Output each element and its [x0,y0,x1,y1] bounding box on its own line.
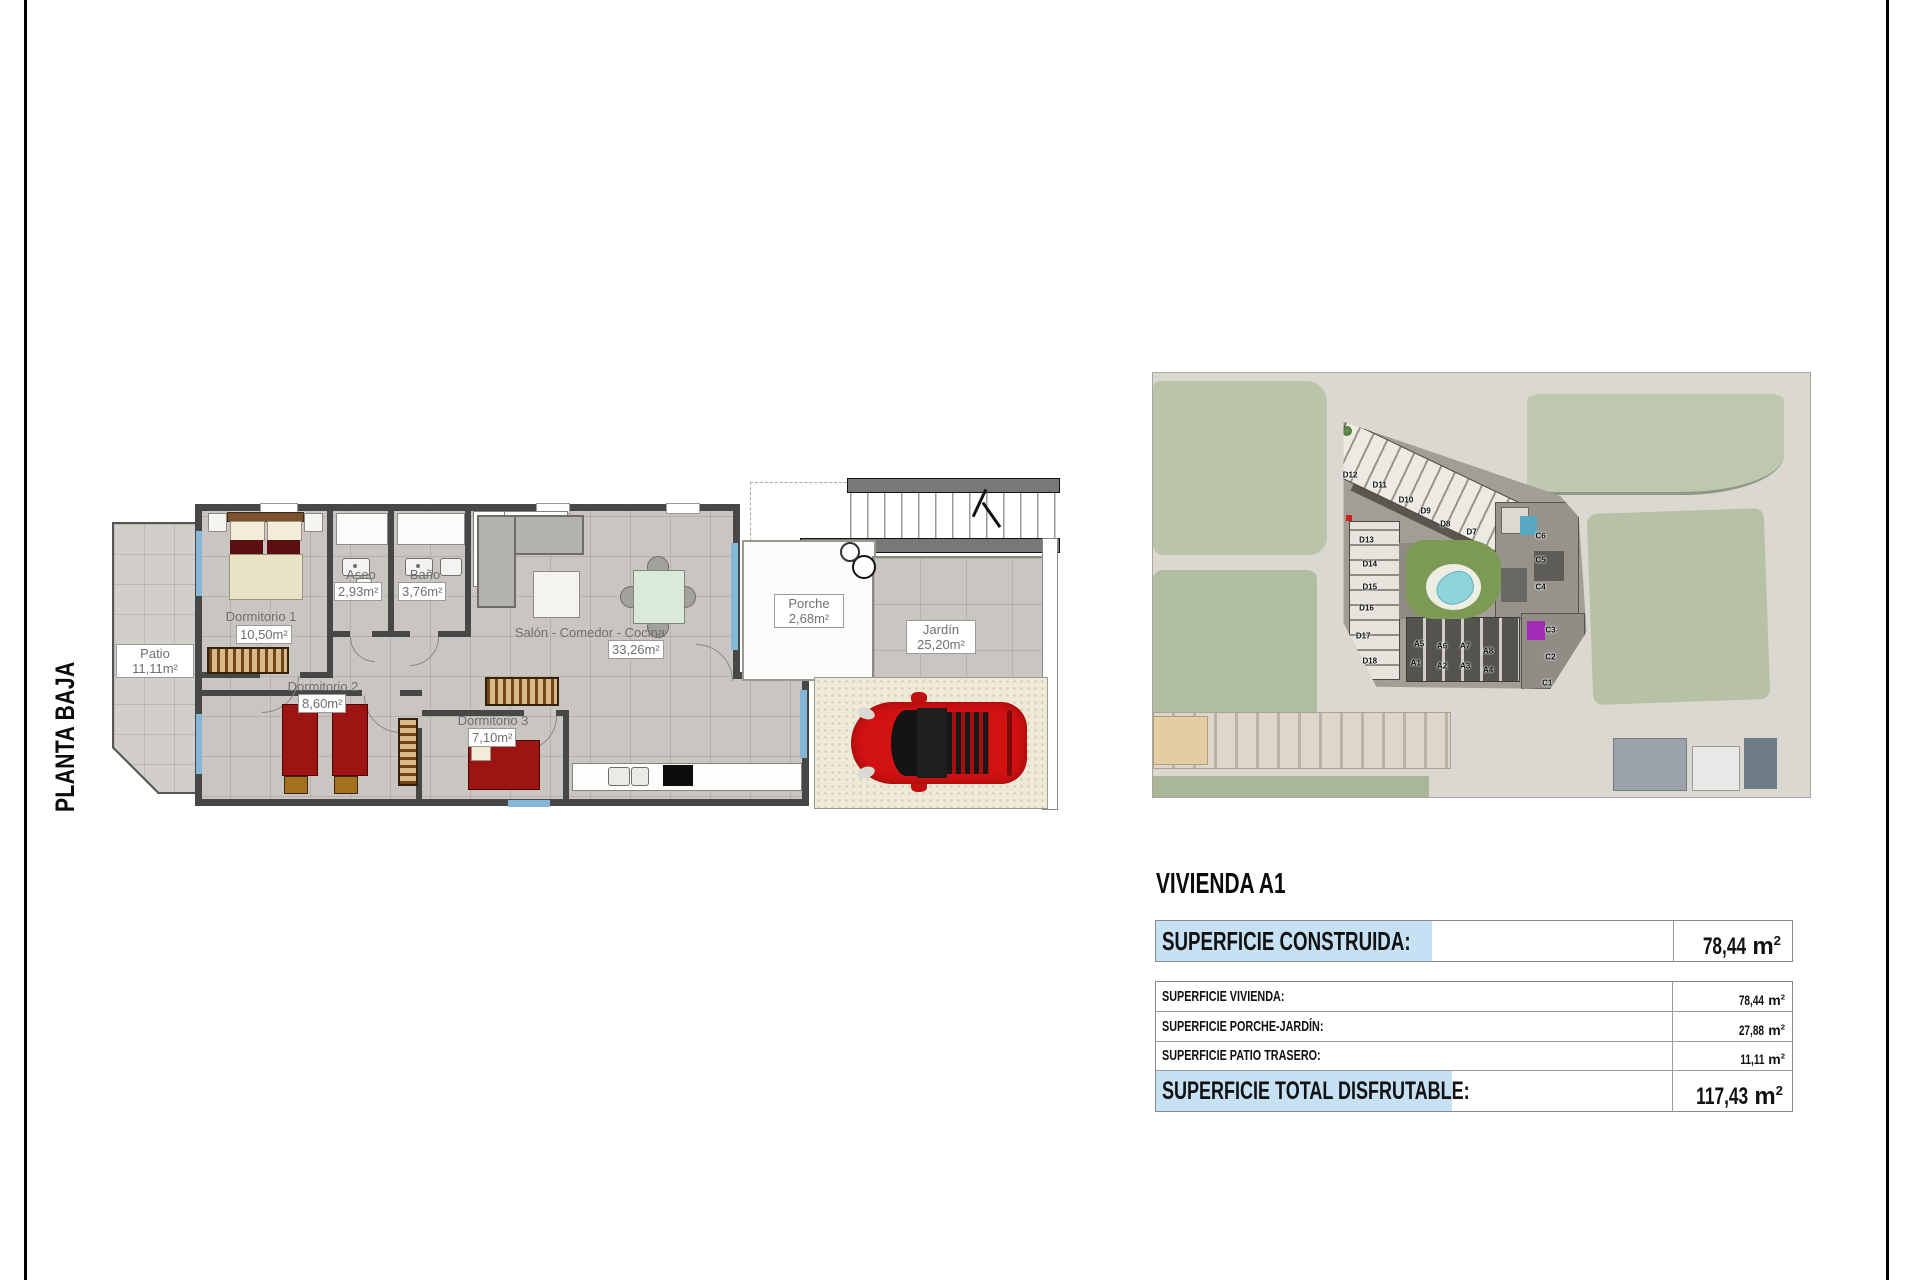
site-unit-label: D13 [1359,536,1374,545]
window-icon [196,531,202,596]
wall-segment [438,631,471,637]
stairs-landing-wall [847,478,1060,493]
nightstand-icon [208,513,227,532]
shower-tray [336,513,388,545]
room-label-jardin: Jardín25,20m² [906,620,976,654]
sheet-border-right [1886,0,1889,1280]
room-name-dormitorio1: Dormitorio 1 [216,610,306,624]
floor-level-label: PLANTA BAJA [50,661,81,812]
door-glass [800,690,807,758]
room-area-salon: 33,26m² [608,640,664,659]
room-area-bano: 3,76m² [398,582,446,601]
site-plan-image: D12D11D10D9D8D7D13D14D15D16D17D18C6C5C4C… [1152,372,1811,798]
shower-tray [397,513,465,545]
summary-detail-row: SUPERFICIE PORCHE-JARDÍN: 27,88 m2 [1156,1012,1792,1042]
site-unit-label: D14 [1362,559,1377,568]
summary-detail-row: SUPERFICIE VIVIENDA: 78,44 m2 [1156,982,1792,1012]
summary-row-label-cell: SUPERFICIE PORCHE-JARDÍN: [1156,1012,1386,1041]
site-unit-label: D12 [1343,470,1358,479]
summary-title: VIVIENDA A1 [1156,868,1336,901]
wall-segment [333,631,350,637]
summary-row-label-cell: SUPERFICIE CONSTRUIDA: [1156,921,1432,961]
car-tail-line [1007,710,1012,776]
bed-mattress [229,554,303,600]
wall-segment [388,511,394,637]
site-unit-label: A4 [1483,665,1493,674]
wall-segment [300,672,333,678]
room-area-dormitorio1: 10,50m² [236,625,292,644]
pillow-icon [267,521,302,541]
site-unit-label: D11 [1373,481,1387,490]
driveway-area [814,677,1048,809]
summary-row-value-cell: 27,88 m2 [1672,1012,1794,1041]
summary-row-label-cell: SUPERFICIE PATIO TRASERO: [1156,1042,1382,1070]
bed-icon [282,704,318,776]
site-unit-label: A5 [1414,640,1424,649]
summary-row-value-cell: 117,43 m2 [1672,1071,1794,1111]
site-unit-label: A7 [1460,642,1470,651]
room-name-aseo: Aseo [338,568,384,582]
window-icon [731,543,738,650]
site-unit-label: A1 [1411,659,1421,668]
stairs-steps [850,490,1058,539]
room-label-patio: Patio11,11m² [116,644,194,678]
site-unit-label: A8 [1483,646,1493,655]
coffee-table-icon [533,571,580,618]
site-unit-label: D8 [1440,519,1450,528]
room-area-dormitorio3: 7,10m² [468,728,516,747]
wall-segment [372,631,394,637]
window-icon [196,714,202,774]
sheet-border-left [24,0,27,1280]
site-unit-label: D15 [1362,583,1377,592]
bed-blanket [267,540,300,554]
sheet: PLANTA BAJA [0,0,1920,1280]
dining-table-icon [633,570,685,624]
room-label-porche: Porche2,68m² [774,594,844,628]
pillow-icon [230,521,265,541]
site-unit-label: D16 [1359,604,1374,613]
site-unit-label: C4 [1536,583,1546,592]
site-unit-label: D18 [1362,657,1377,666]
bed-icon [332,704,368,776]
bed-blanket [230,540,263,554]
summary-row-value-cell: 78,44 m2 [1672,982,1794,1011]
site-unit-label: D7 [1467,528,1477,537]
summary-detail-table: SUPERFICIE VIVIENDA: 78,44 m2 SUPERFICIE… [1155,981,1793,1112]
site-unit-label: A6 [1437,642,1447,651]
site-unit-label: D9 [1421,506,1431,515]
floor-plan: Patio11,11m² Dormitorio 1 10,50m² Aseo 2… [110,476,1060,826]
car-roof [917,708,947,778]
kitchen-sink-icon [608,767,630,786]
window-icon [666,503,700,514]
window-icon [508,800,550,807]
summary-row-label-cell: SUPERFICIE VIVIENDA: [1156,982,1332,1011]
site-unit-label: D10 [1399,496,1414,505]
site-unit-labels: D12D11D10D9D8D7D13D14D15D16D17D18C6C5C4C… [1153,373,1810,797]
room-name-salon: Salón - Comedor - Cocina [510,626,670,640]
wall-segment [400,690,422,696]
kitchen-sink-icon [631,767,649,786]
wardrobe-icon [398,718,418,786]
nightstand-icon [304,513,323,532]
wall-segment [563,716,569,806]
site-unit-label: C6 [1536,532,1546,541]
car-windshield [891,710,917,776]
room-area-dormitorio2: 8,60m² [298,694,346,713]
wardrobe-icon [485,677,559,706]
room-name-dormitorio3: Dormitorio 3 [448,714,538,728]
room-name-dormitorio2: Dormitorio 2 [278,680,368,694]
summary-row-value-cell: 78,44 m2 [1673,921,1793,961]
nightstand-icon [334,776,358,794]
site-unit-label: D17 [1356,631,1371,640]
wardrobe-icon [207,647,289,674]
cooktop-icon [663,765,693,786]
site-unit-label: A3 [1460,661,1470,670]
summary-total-row: SUPERFICIE TOTAL DISFRUTABLE: 117,43 m2 [1156,1071,1792,1111]
summary-detail-row: SUPERFICIE PATIO TRASERO: 11,11 m2 [1156,1042,1792,1071]
wall-segment [327,511,333,672]
car-engine-grille [947,712,989,774]
wall-segment [394,631,410,637]
column-icon [840,542,860,562]
site-unit-label: C1 [1542,678,1552,687]
site-unit-label: C5 [1536,555,1546,564]
jardin-area [872,556,1048,681]
site-unit-label: A2 [1437,661,1447,670]
sofa-chaise [477,515,516,608]
room-area-aseo: 2,93m² [334,582,382,601]
summary-row-label-cell: SUPERFICIE TOTAL DISFRUTABLE: [1156,1071,1452,1111]
summary-row-value-cell: 11,11 m2 [1672,1042,1794,1070]
nightstand-icon [284,776,308,794]
site-unit-label: C3 [1545,625,1555,634]
summary-row-construida: SUPERFICIE CONSTRUIDA: 78,44 m2 [1155,920,1793,962]
wall-segment [465,511,471,637]
site-unit-label: C2 [1545,653,1555,662]
room-name-bano: Baño [402,568,448,582]
